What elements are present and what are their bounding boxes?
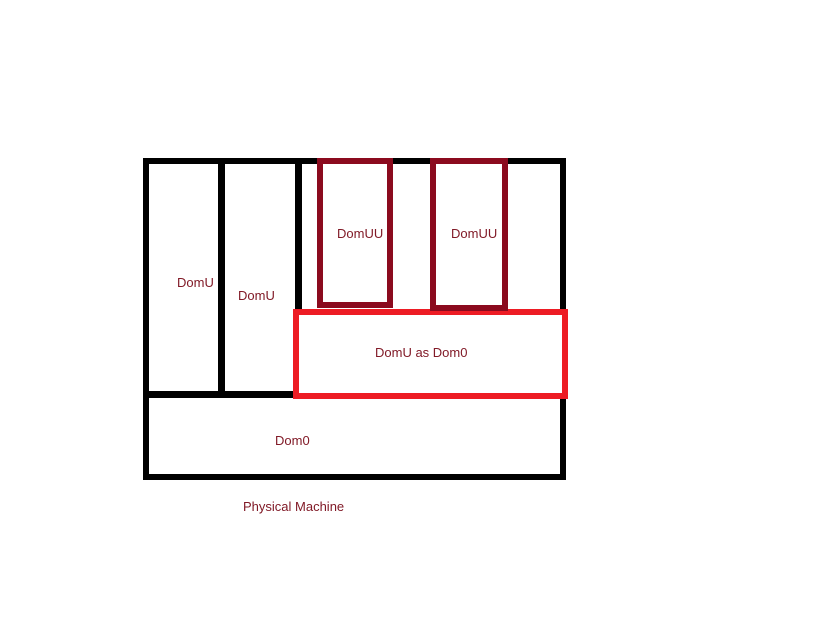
domu1-label: DomU <box>177 276 214 290</box>
domuu2-label: DomUU <box>451 227 497 241</box>
domu2-right-divider <box>295 158 302 309</box>
domu1-domu2-divider <box>218 158 225 397</box>
physical-machine-label: Physical Machine <box>243 500 344 514</box>
domuu1-label: DomUU <box>337 227 383 241</box>
dom0-label: Dom0 <box>275 434 310 448</box>
dom0-top-divider <box>143 391 303 398</box>
domu2-label: DomU <box>238 289 275 303</box>
domu-as-dom0-label: DomU as Dom0 <box>375 346 467 360</box>
nested-virtualization-diagram: DomU DomU DomUU DomUU DomU as Dom0 Dom0 … <box>0 0 840 630</box>
